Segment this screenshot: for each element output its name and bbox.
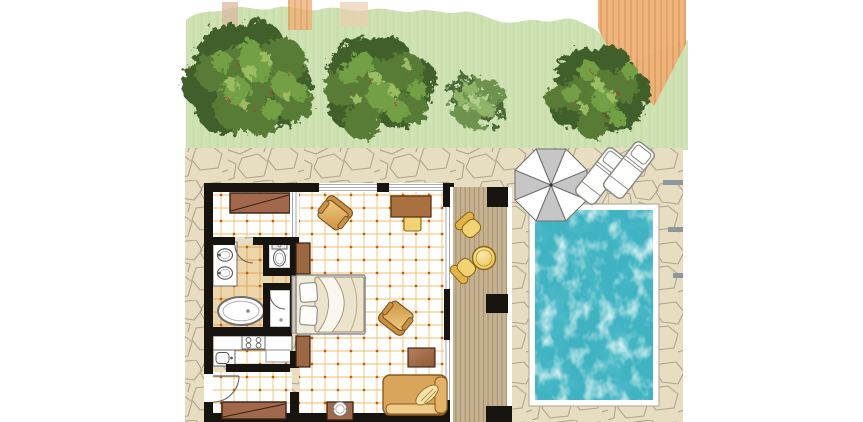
deck-sill bbox=[450, 187, 453, 422]
pool-water bbox=[535, 210, 653, 400]
parasol-pole bbox=[550, 184, 553, 187]
pillow-1 bbox=[299, 282, 317, 302]
wall-segment bbox=[253, 237, 290, 245]
wardrobe-entry bbox=[222, 402, 286, 419]
ice-bucket-stand bbox=[327, 402, 353, 420]
parasol bbox=[515, 149, 587, 221]
wall-segment bbox=[263, 283, 270, 328]
roof-fragment bbox=[340, 2, 368, 26]
step bbox=[663, 180, 683, 185]
nightstand-1 bbox=[296, 243, 310, 274]
sofa bbox=[383, 375, 447, 415]
window-1 bbox=[319, 183, 377, 192]
roof-fragment bbox=[288, 0, 312, 30]
double-bed bbox=[292, 275, 365, 334]
deck-post bbox=[487, 187, 508, 207]
wooden-deck bbox=[448, 187, 512, 422]
deck-post bbox=[486, 406, 512, 422]
deck-post bbox=[486, 294, 508, 313]
wall-segment bbox=[377, 183, 389, 192]
toilet bbox=[272, 242, 287, 266]
interior-opening bbox=[290, 192, 299, 237]
pillow-2 bbox=[299, 306, 317, 326]
wall-segment bbox=[263, 239, 269, 270]
wall-segment bbox=[213, 237, 235, 245]
kitchen-cabinet bbox=[266, 350, 292, 362]
desk bbox=[391, 196, 431, 217]
step bbox=[673, 273, 683, 278]
step bbox=[668, 227, 683, 232]
kitchen-sink bbox=[213, 350, 235, 366]
washbasin-1 bbox=[218, 249, 233, 261]
wall-segment bbox=[213, 327, 292, 336]
floor-plan-scene bbox=[0, 0, 863, 422]
washbasin-2 bbox=[218, 267, 233, 279]
wall-segment bbox=[204, 183, 213, 374]
nightstand-2 bbox=[296, 336, 310, 367]
window-2 bbox=[389, 183, 443, 192]
wall-segment bbox=[226, 364, 290, 372]
floor-plan-page bbox=[0, 0, 863, 422]
wall-segment bbox=[204, 183, 319, 192]
side-table bbox=[408, 348, 435, 367]
wall-segment bbox=[263, 268, 290, 276]
bungalow bbox=[204, 183, 467, 422]
swimming-pool bbox=[529, 204, 659, 406]
wall-segment bbox=[290, 392, 299, 413]
bathtub bbox=[218, 297, 264, 325]
wardrobe-top bbox=[230, 193, 290, 213]
shrub bbox=[450, 76, 504, 129]
stove bbox=[242, 336, 265, 349]
shower-drain bbox=[279, 318, 282, 321]
